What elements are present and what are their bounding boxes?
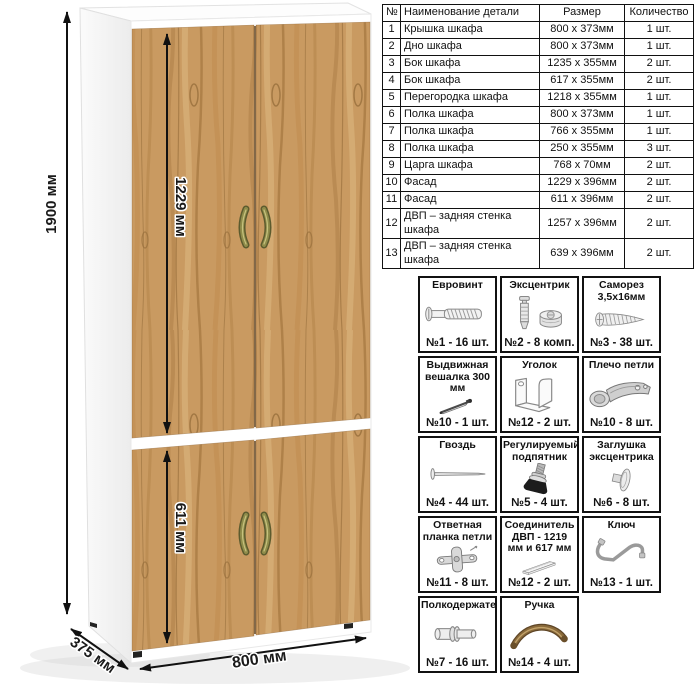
table-cell: 250 х 355мм (540, 141, 625, 158)
hardware-item-title: Выдвижная вешалка 300 мм (421, 360, 494, 395)
nail-icon (422, 454, 492, 494)
hardware-item-count: №10 - 8 шт. (590, 416, 653, 430)
table-cell: 5 (383, 90, 401, 107)
hardware-item: Соединитель ДВП - 1219 мм и 617 мм №12 -… (500, 516, 579, 593)
table-cell: Дно шкафа (401, 39, 540, 56)
wardrobe-illustration: 1900 мм 1229 мм 611 мм 800 мм 375 мм (0, 0, 410, 700)
cap-icon (585, 463, 658, 496)
table-cell: 4 (383, 73, 401, 90)
table-cell: 10 (383, 175, 401, 192)
table-cell: 800 х 373мм (540, 39, 625, 56)
euroscrew-icon (421, 292, 494, 337)
header-part-name: Наименование детали (401, 5, 540, 22)
hanger-icon (421, 395, 494, 417)
table-row: 13ДВП – задняя стенка шкафа639 х 396мм2 … (383, 239, 694, 269)
table-row: 6Полка шкафа800 х 373мм1 шт. (383, 107, 694, 124)
table-cell: 800 х 373мм (540, 107, 625, 124)
hardware-item-count: №14 - 4 шт. (508, 656, 571, 670)
upper-right-door (256, 22, 370, 428)
table-cell: 6 (383, 107, 401, 124)
table-cell: 611 х 396мм (540, 192, 625, 209)
hardware-item-title: Уголок (503, 360, 576, 372)
lower-right-door (256, 429, 370, 635)
hardware-item: Заглушка эксцентрика №6 - 8 шт. (582, 436, 661, 513)
screw-icon (586, 303, 656, 336)
upper-door-dimension-label: 1229 мм (172, 177, 189, 237)
hardware-item: Эксцентрик №2 - 8 комп. (500, 276, 579, 353)
table-cell: 1257 х 396мм (540, 209, 625, 239)
table-cell: Бок шкафа (401, 73, 540, 90)
table-row: 10Фасад1229 х 396мм2 шт. (383, 175, 694, 192)
table-row: 8Полка шкафа250 х 355мм3 шт. (383, 141, 694, 158)
cap-icon (586, 463, 656, 496)
pin-icon (421, 612, 494, 657)
table-cell: 2 шт. (625, 192, 694, 209)
hardware-item: Ключ №13 - 1 шт. (582, 516, 661, 593)
table-cell: Полка шкафа (401, 124, 540, 141)
table-cell: 1218 х 355мм (540, 90, 625, 107)
hardware-item: Ответная планка петли №11 - 8 шт. (418, 516, 497, 593)
key-icon (586, 534, 656, 574)
table-row: 2Дно шкафа800 х 373мм1 шт. (383, 39, 694, 56)
table-cell: 1 (383, 22, 401, 39)
key-icon (585, 532, 658, 577)
header-number: № (383, 5, 401, 22)
table-row: 11Фасад611 х 396мм2 шт. (383, 192, 694, 209)
cam-icon (503, 292, 576, 337)
table-cell: 11 (383, 192, 401, 209)
table-row: 3Бок шкафа1235 х 355мм2 шт. (383, 56, 694, 73)
table-cell: 12 (383, 209, 401, 239)
table-row: 7Полка шкафа766 х 355мм1 шт. (383, 124, 694, 141)
table-cell: 768 х 70мм (540, 158, 625, 175)
hanger-icon (422, 395, 492, 417)
foot-icon (504, 463, 574, 496)
table-cell: 2 шт. (625, 56, 694, 73)
hardware-item: Гвоздь №4 - 44 шт. (418, 436, 497, 513)
strip-icon (503, 555, 576, 577)
hardware-item-title: Соединитель ДВП - 1219 мм и 617 мм (503, 520, 576, 555)
cam-icon (504, 294, 574, 334)
table-row: 9Царга шкафа768 х 70мм2 шт. (383, 158, 694, 175)
header-size: Размер (540, 5, 625, 22)
strip-icon (504, 555, 574, 577)
hardware-item-title: Полкодержатель (421, 600, 494, 612)
hardware-item-count: №5 - 4 шт. (511, 496, 567, 510)
table-cell: 766 х 355мм (540, 124, 625, 141)
table-row: 12ДВП – задняя стенка шкафа1257 х 396мм2… (383, 209, 694, 239)
upper-right-handle (264, 209, 268, 245)
hardware-item-count: №6 - 8 шт. (593, 496, 649, 510)
table-cell: 8 (383, 141, 401, 158)
table-cell: ДВП – задняя стенка шкафа (401, 239, 540, 269)
table-cell: 2 шт. (625, 158, 694, 175)
table-cell: 1 шт. (625, 22, 694, 39)
table-cell: 7 (383, 124, 401, 141)
hardware-item-title: Плечо петли (585, 360, 658, 372)
lower-left-door (132, 440, 254, 651)
table-cell: 1 шт. (625, 124, 694, 141)
hardware-item-title: Ручка (503, 600, 576, 612)
table-cell: 2 шт. (625, 175, 694, 192)
hardware-item-title: Ответная планка петли (421, 520, 494, 543)
table-cell: 1229 х 396мм (540, 175, 625, 192)
hardware-item: Евровинт №1 - 16 шт. (418, 276, 497, 353)
table-cell: 2 (383, 39, 401, 56)
table-cell: Крышка шкафа (401, 22, 540, 39)
hardware-item: Саморез 3,5х16мм №3 - 38 шт. (582, 276, 661, 353)
hardware-item-count: №13 - 1 шт. (590, 576, 653, 590)
hardware-item-count: №11 - 8 шт. (426, 576, 488, 590)
table-cell: 639 х 396мм (540, 239, 625, 269)
hardware-item-count: №10 - 1 шт. (426, 416, 489, 430)
table-cell: 3 шт. (625, 141, 694, 158)
foot-icon (503, 463, 576, 496)
table-cell: Фасад (401, 192, 540, 209)
hardware-item-count: №7 - 16 шт. (426, 656, 489, 670)
hinge-icon (585, 372, 658, 417)
hardware-item-title: Эксцентрик (503, 280, 576, 292)
hardware-item-count: №4 - 44 шт. (426, 496, 489, 510)
hardware-item: Регулируемый подпятник №5 - 4 шт. (500, 436, 579, 513)
hardware-item-title: Саморез 3,5х16мм (585, 280, 658, 303)
table-cell: 1 шт. (625, 39, 694, 56)
table-cell: 3 (383, 56, 401, 73)
parts-table: № Наименование детали Размер Количество … (382, 4, 694, 269)
handle-icon (504, 614, 574, 654)
hardware-item-title: Ключ (585, 520, 658, 532)
hardware-item-title: Заглушка эксцентрика (585, 440, 658, 463)
hardware-item-count: №3 - 38 шт. (590, 336, 653, 350)
handle-icon (503, 612, 576, 657)
table-cell: 800 х 373мм (540, 22, 625, 39)
hardware-item-count: №1 - 16 шт. (426, 336, 489, 350)
table-cell: Фасад (401, 175, 540, 192)
table-cell: Царга шкафа (401, 158, 540, 175)
lower-left-handle (242, 515, 246, 552)
plate-icon (421, 543, 494, 576)
bracket-icon (503, 372, 576, 417)
hardware-item-count: №12 - 2 шт. (508, 416, 571, 430)
height-dimension-label: 1900 мм (43, 174, 60, 234)
table-cell: 2 шт. (625, 73, 694, 90)
hardware-item: Ручка №14 - 4 шт. (500, 596, 579, 673)
hardware-grid: Евровинт №1 - 16 шт.Эксцентрик №2 - 8 ко… (418, 276, 661, 673)
nail-icon (421, 452, 494, 497)
table-cell: 9 (383, 158, 401, 175)
hardware-item: Уголок №12 - 2 шт. (500, 356, 579, 433)
table-cell: 1 шт. (625, 107, 694, 124)
pin-icon (422, 614, 492, 654)
parts-table-body: 1Крышка шкафа800 х 373мм1 шт.2Дно шкафа8… (383, 22, 694, 269)
upper-left-handle (242, 209, 246, 245)
assembly-sheet: 1900 мм 1229 мм 611 мм 800 мм 375 мм № Н… (0, 0, 700, 700)
screw-icon (585, 303, 658, 336)
table-cell: Полка шкафа (401, 107, 540, 124)
table-cell: 2 шт. (625, 209, 694, 239)
table-cell: Полка шкафа (401, 141, 540, 158)
lower-door-dimension-label: 611 мм (172, 503, 189, 554)
hardware-item-title: Регулируемый подпятник (503, 440, 576, 463)
hardware-item-count: №12 - 2 шт. (508, 576, 571, 590)
bracket-icon (504, 374, 574, 414)
euroscrew-icon (422, 294, 492, 334)
table-cell: 1 шт. (625, 90, 694, 107)
table-row: 5Перегородка шкафа1218 х 355мм1 шт. (383, 90, 694, 107)
table-row: 1Крышка шкафа800 х 373мм1 шт. (383, 22, 694, 39)
table-cell: 1235 х 355мм (540, 56, 625, 73)
upper-left-door (132, 25, 254, 438)
hardware-item-count: №2 - 8 комп. (504, 336, 574, 350)
table-cell: 617 х 355мм (540, 73, 625, 90)
table-cell: 2 шт. (625, 239, 694, 269)
hardware-item: Плечо петли №10 - 8 шт. (582, 356, 661, 433)
header-quantity: Количество (625, 5, 694, 22)
hardware-item-title: Гвоздь (421, 440, 494, 452)
parts-table-header-row: № Наименование детали Размер Количество (383, 5, 694, 22)
table-cell: Перегородка шкафа (401, 90, 540, 107)
hinge-icon (586, 374, 656, 414)
hardware-item: Полкодержатель №7 - 16 шт. (418, 596, 497, 673)
lower-right-handle (264, 515, 268, 552)
table-cell: ДВП – задняя стенка шкафа (401, 209, 540, 239)
hardware-item-title: Евровинт (421, 280, 494, 292)
plate-icon (422, 543, 492, 576)
table-cell: Бок шкафа (401, 56, 540, 73)
table-row: 4Бок шкафа617 х 355мм2 шт. (383, 73, 694, 90)
hardware-item: Выдвижная вешалка 300 мм №10 - 1 шт. (418, 356, 497, 433)
table-cell: 13 (383, 239, 401, 269)
